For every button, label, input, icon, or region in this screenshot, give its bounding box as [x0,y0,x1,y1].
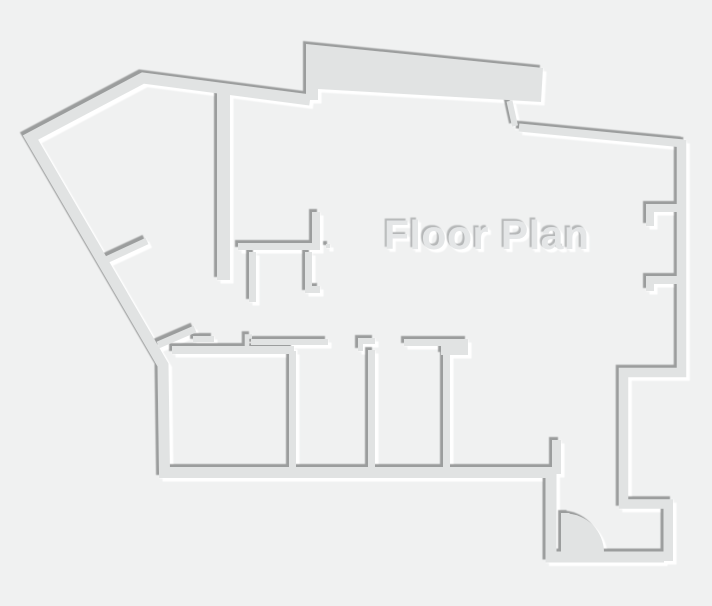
wall-bump-connector [510,101,516,126]
door-swing-arc [565,514,604,553]
wall-exterior-outline [31,78,665,557]
floor-plan-canvas: Floor Plan [0,0,712,606]
floor-plan-page: Floor Plan [0,0,712,606]
window-notch-lower [650,280,679,291]
wall-jamb-dot [326,244,330,248]
window-notch-upper [650,208,679,226]
walls-group [31,44,684,561]
wall-diagonal-stub-lower [158,329,195,345]
wall-exterior-right [624,140,682,561]
wall-top-right [519,128,684,144]
wall-closet-stub-right [309,252,321,290]
wall-diagonal-stub-upper [106,241,147,260]
wall-top-bump [306,44,543,102]
wall-block-room3 [441,339,468,355]
floor-plan-label: Floor Plan [384,212,589,258]
